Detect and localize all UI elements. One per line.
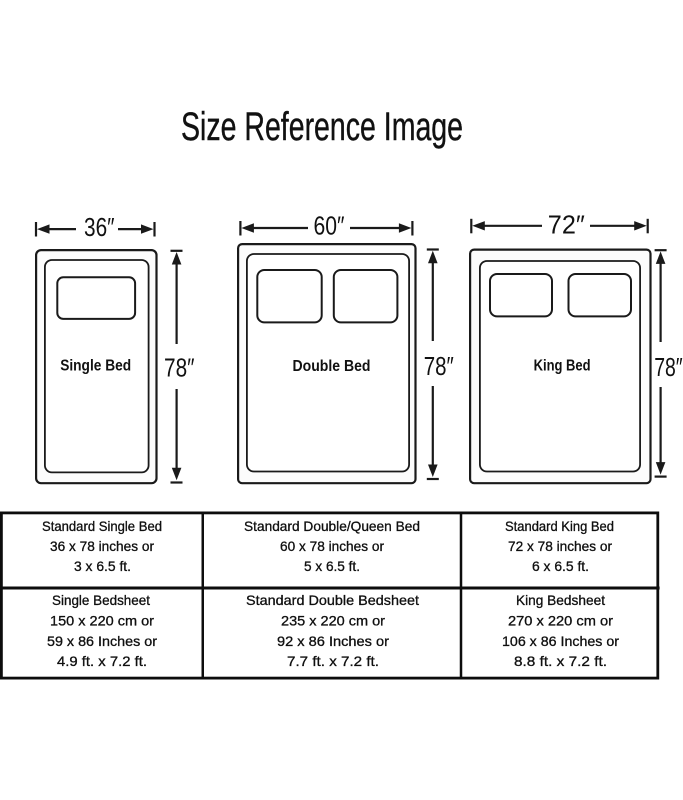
svg-text:59 x 86 Inches or: 59 x 86 Inches or xyxy=(47,633,157,649)
svg-text:7.7 ft. x 7.2 ft.: 7.7 ft. x 7.2 ft. xyxy=(287,653,379,669)
svg-text:78″: 78″ xyxy=(164,353,195,383)
svg-text:150 x 220 cm or: 150 x 220 cm or xyxy=(50,613,154,629)
svg-text:72 x 78 inches or: 72 x 78 inches or xyxy=(508,538,612,554)
svg-text:King Bedsheet: King Bedsheet xyxy=(516,592,605,608)
svg-text:Double Bed: Double Bed xyxy=(293,358,371,375)
svg-text:8.8 ft. x 7.2 ft.: 8.8 ft. x 7.2 ft. xyxy=(514,653,607,669)
svg-text:106 x 86 Inches or: 106 x 86 Inches or xyxy=(502,633,619,649)
svg-text:King Bed: King Bed xyxy=(534,357,591,374)
svg-text:Standard Single Bed: Standard Single Bed xyxy=(42,518,162,534)
svg-text:Standard Double/Queen Bed: Standard Double/Queen Bed xyxy=(244,518,420,534)
svg-text:Standard King Bed: Standard King Bed xyxy=(505,518,614,534)
svg-text:78″: 78″ xyxy=(654,352,683,382)
svg-text:Single Bed: Single Bed xyxy=(60,357,131,374)
svg-text:Size Reference Image: Size Reference Image xyxy=(181,105,463,149)
svg-text:Single Bedsheet: Single Bedsheet xyxy=(52,592,150,608)
svg-text:36 x 78 inches or: 36 x 78 inches or xyxy=(50,538,154,554)
svg-text:3 x 6.5 ft.: 3 x 6.5 ft. xyxy=(74,558,131,574)
svg-text:72″: 72″ xyxy=(548,210,585,240)
svg-text:270 x 220 cm or: 270 x 220 cm or xyxy=(508,613,613,629)
svg-text:235 x 220 cm or: 235 x 220 cm or xyxy=(281,613,385,629)
svg-text:6 x 6.5 ft.: 6 x 6.5 ft. xyxy=(532,558,589,574)
svg-text:92 x 86 Inches or: 92 x 86 Inches or xyxy=(277,633,389,649)
svg-text:4.9 ft. x 7.2 ft.: 4.9 ft. x 7.2 ft. xyxy=(57,653,147,669)
svg-text:60 x 78 inches or: 60 x 78 inches or xyxy=(280,538,384,554)
svg-text:36″: 36″ xyxy=(84,212,115,242)
svg-text:78″: 78″ xyxy=(424,351,454,381)
svg-text:60″: 60″ xyxy=(314,211,345,241)
svg-text:Standard Double Bedsheet: Standard Double Bedsheet xyxy=(246,592,419,608)
svg-text:5 x 6.5 ft.: 5 x 6.5 ft. xyxy=(304,558,360,574)
